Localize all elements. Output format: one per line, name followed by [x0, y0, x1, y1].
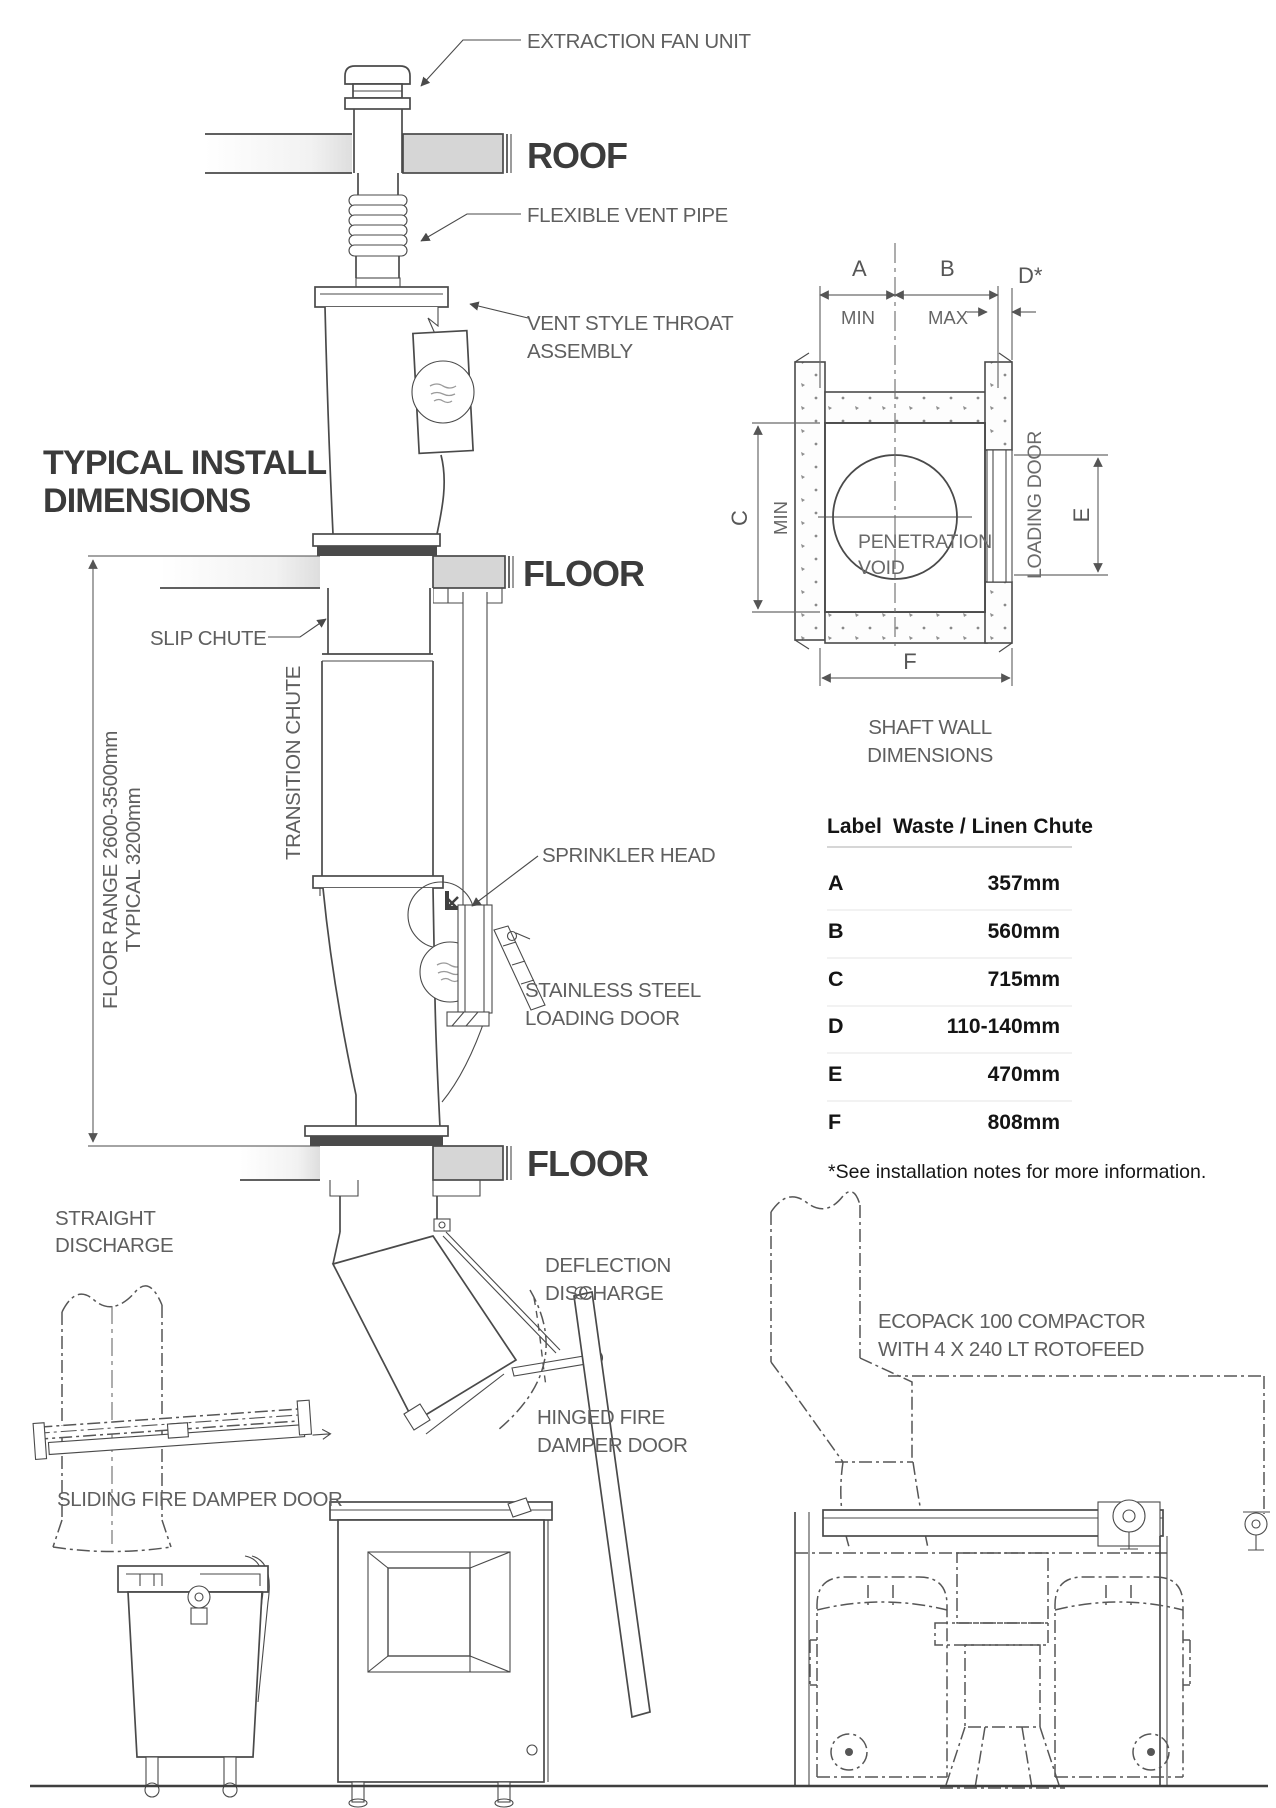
table-row-value: 470mm: [988, 1063, 1060, 1086]
diagram-canvas: A B D* MIN MAX C MIN E LOADING DOOR PENE…: [0, 0, 1276, 1808]
straight-discharge-label-1: STRAIGHT: [55, 1207, 156, 1230]
ecopack-label-2: WITH 4 X 240 LT ROTOFEED: [878, 1338, 1144, 1361]
roof-label: ROOF: [527, 135, 627, 176]
table-row-label: A: [828, 871, 844, 895]
chute-install-diagram-page: A B D* MIN MAX C MIN E LOADING DOOR PENE…: [0, 0, 1276, 1808]
height-dim-label-1: TYPICAL 3200mm: [122, 788, 145, 953]
table-header-value: Waste / Linen Chute: [893, 815, 1093, 838]
table-row-value: 110-140mm: [947, 1015, 1060, 1038]
table-row-label: B: [828, 919, 844, 943]
table-row-label: C: [828, 967, 844, 991]
dim-a-label: A: [852, 256, 867, 281]
table-row-label: E: [828, 1062, 842, 1086]
page-title-line1: TYPICAL INSTALL: [43, 444, 326, 482]
loading-door-rotated-label: LOADING DOOR: [1024, 431, 1046, 579]
height-dim-label-2: FLOOR RANGE 2600-3500mm: [99, 731, 122, 1009]
floor-2-label: FLOOR: [527, 1143, 649, 1184]
floor-1-label: FLOOR: [523, 553, 645, 594]
penetration-void-label-1: PENETRATION: [858, 531, 992, 553]
slip-chute-label: SLIP CHUTE: [150, 627, 266, 650]
table-row-value: 715mm: [988, 968, 1060, 991]
deflection-discharge-label-1: DEFLECTION: [545, 1254, 671, 1277]
installation-note: *See installation notes for more informa…: [828, 1161, 1206, 1183]
dim-b-label: B: [940, 256, 955, 281]
dim-f-label: F: [903, 649, 916, 674]
table-row-label: F: [828, 1110, 841, 1134]
sprinkler-label: SPRINKLER HEAD: [542, 844, 715, 867]
penetration-void-label-2: VOID: [858, 557, 905, 579]
vent-throat-label-1: VENT STYLE THROAT: [527, 312, 734, 335]
dim-e-label: E: [1069, 508, 1094, 523]
manufacturer-logo-badge: [412, 361, 474, 423]
dim-max-top: MAX: [928, 307, 968, 328]
dim-min-top: MIN: [841, 307, 875, 328]
extraction-fan-unit: [345, 66, 410, 193]
stainless-label-2: LOADING DOOR: [525, 1007, 680, 1030]
page-title-line2: DIMENSIONS: [43, 482, 250, 520]
table-row-value: 560mm: [988, 920, 1060, 943]
dim-d-label: D*: [1018, 263, 1043, 288]
table-row-value: 808mm: [988, 1111, 1060, 1134]
dim-min-left: MIN: [770, 501, 791, 535]
vent-throat-label-2: ASSEMBLY: [527, 340, 634, 363]
deflection-discharge-label-2: DISCHARGE: [545, 1282, 663, 1305]
hinged-damper-label-1: HINGED FIRE: [537, 1406, 665, 1429]
sliding-damper-label: SLIDING FIRE DAMPER DOOR: [57, 1488, 342, 1511]
transition-chute-label: TRANSITION CHUTE: [282, 666, 305, 860]
straight-discharge-label-2: DISCHARGE: [55, 1234, 173, 1257]
slip-and-transition-chute: [313, 588, 443, 896]
shaft-caption-2: DIMENSIONS: [867, 744, 993, 767]
table-row-value: 357mm: [988, 872, 1060, 895]
table-header-label: Label: [827, 815, 882, 838]
table-row-label: D: [828, 1014, 844, 1038]
shaft-caption-1: SHAFT WALL: [868, 716, 992, 739]
extraction-fan-label: EXTRACTION FAN UNIT: [527, 30, 751, 53]
dim-c-label: C: [727, 510, 752, 526]
hinged-damper-label-2: DAMPER DOOR: [537, 1434, 688, 1457]
flexible-vent-label: FLEXIBLE VENT PIPE: [527, 204, 728, 227]
ecopack-label-1: ECOPACK 100 COMPACTOR: [878, 1310, 1145, 1333]
stainless-label-1: STAINLESS STEEL: [525, 979, 701, 1002]
